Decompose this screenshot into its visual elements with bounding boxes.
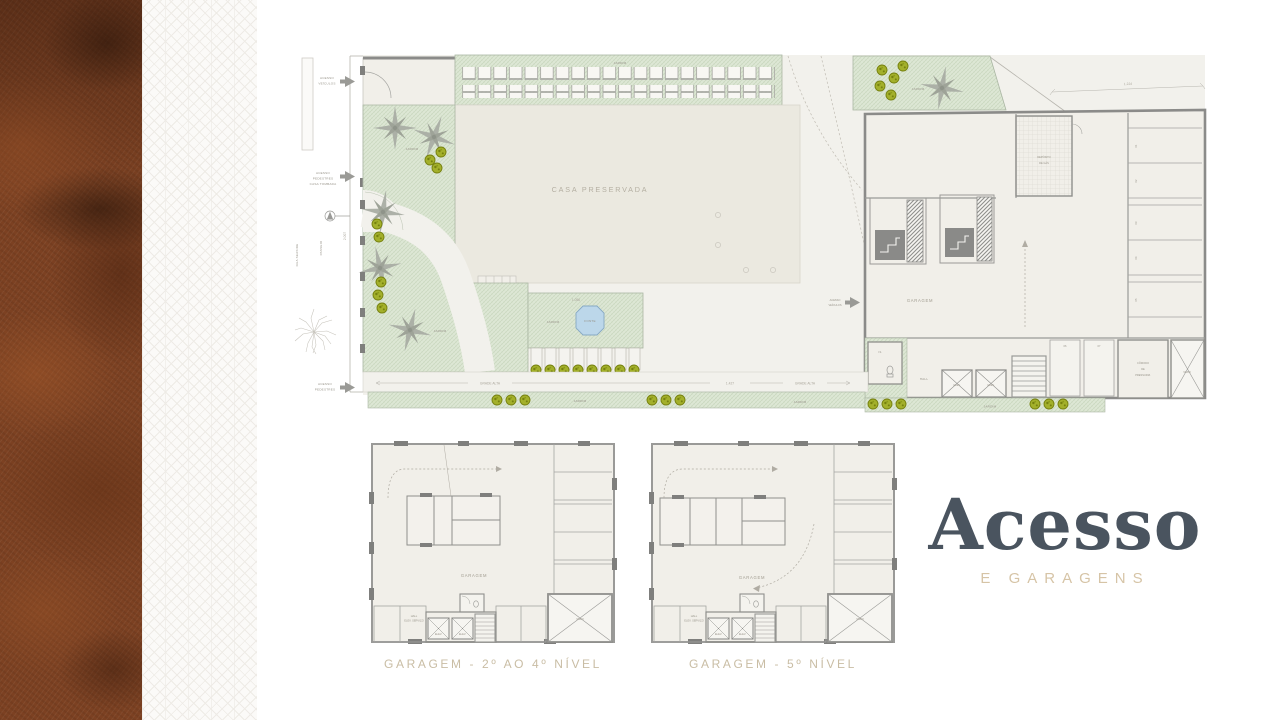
- deposito-gas-room: DEPÓSITO DE GÁS: [1016, 116, 1082, 196]
- svg-text:CASA TOMBADA: CASA TOMBADA: [310, 182, 337, 186]
- grade-alta-label: GRADE ALTA: [480, 382, 501, 386]
- caption-plan-5: GARAGEM - 5º NÍVEL: [642, 657, 904, 671]
- svg-text:HALL: HALL: [691, 614, 698, 618]
- dim-bottom: 1.427: [726, 382, 734, 386]
- floorplan-garagem-5: VAZIO HALL ELEV. SERVIÇO ELEV. ELEV.: [642, 436, 904, 654]
- acesso-pedestres: ACESSO PEDESTRES: [315, 382, 355, 393]
- casa-preservada: CASA PRESERVADA: [455, 105, 800, 288]
- grade-alta-label: GRADE ALTA: [795, 382, 816, 386]
- jardim-label: JARDIM: [406, 147, 419, 151]
- svg-text:VEÍCULOS: VEÍCULOS: [318, 82, 335, 86]
- floorplan-garagem-2-4: VAZIO HALL ELEV. SERVIÇO ELEV. ELEV.: [362, 436, 624, 654]
- jardim-label: JARDIM: [614, 61, 627, 65]
- north-symbol: [325, 211, 350, 221]
- svg-text:ACESSO: ACESSO: [316, 171, 330, 175]
- svg-text:PEDESTRES: PEDESTRES: [313, 177, 334, 181]
- svg-text:ACESSO: ACESSO: [318, 382, 332, 386]
- jardim-label: JARDIM: [574, 399, 587, 403]
- svg-text:ELEV.: ELEV.: [435, 632, 442, 636]
- elev-label: ELEV.: [987, 383, 994, 387]
- svg-text:ELEV. SERVIÇO: ELEV. SERVIÇO: [404, 619, 423, 623]
- svg-text:ACESSO: ACESSO: [320, 76, 334, 80]
- storage-block: [660, 498, 785, 545]
- void-shaft: VAZIO: [828, 594, 892, 642]
- garagem-label: GARAGEM: [461, 573, 487, 578]
- woven-pattern-strip: [142, 0, 257, 720]
- void-shaft: VAZIO: [548, 594, 612, 642]
- svg-text:HALL: HALL: [411, 614, 418, 618]
- stairs: [1012, 356, 1046, 397]
- svg-text:ELEV.: ELEV.: [715, 632, 722, 636]
- jardim-label: JARDIM: [912, 87, 925, 91]
- svg-text:ELEV. SERVIÇO: ELEV. SERVIÇO: [684, 619, 703, 623]
- svg-text:PRESSURIZ.: PRESSURIZ.: [1135, 373, 1151, 377]
- pergola-strip: JARDIM: [455, 55, 782, 105]
- sidewalk-label: PASSEIO: [319, 240, 323, 255]
- svg-text:ELEV.: ELEV.: [459, 632, 466, 636]
- stairs: [475, 614, 495, 642]
- pressurization-room: CÔMODO DE PRESSURIZ.: [1118, 340, 1168, 398]
- svg-text:VAZIO: VAZIO: [576, 617, 584, 621]
- svg-text:ACESSO: ACESSO: [830, 298, 841, 302]
- storage-block: [407, 496, 500, 545]
- dim-left: 2.007: [343, 232, 347, 240]
- page-subtitle: E GARAGENS: [915, 570, 1215, 587]
- garagem-label: GARAGEM: [739, 575, 765, 580]
- jardim-label: JARDIM: [547, 320, 560, 324]
- top-right-garden: JARDIM: [853, 56, 1006, 114]
- void-shaft: VAZIO: [1171, 340, 1204, 398]
- street-name: RUA SEASIDE: [295, 244, 299, 267]
- acesso-veiculos-left: ACESSO VEÍCULOS: [318, 76, 355, 87]
- acesso-pedestres-casa: ACESSO PEDESTRES CASA TOMBADA: [310, 171, 355, 186]
- svg-text:DE: DE: [1141, 367, 1145, 371]
- hall-label: HALL: [920, 377, 929, 381]
- slide: JARDIM JARDIM CASA PRESERVADA: [0, 0, 1281, 720]
- wc-room: I.S.: [865, 338, 907, 398]
- caption-plan-2-4: GARAGEM - 2º AO 4º NÍVEL: [362, 657, 624, 671]
- elev-label: ELEV.: [953, 383, 960, 387]
- svg-text:ELEV.: ELEV.: [739, 632, 746, 636]
- vazio-label: VAZIO: [1183, 370, 1191, 374]
- dim-fountain: 1.056: [572, 298, 580, 302]
- fonte-label: FONTE: [584, 319, 595, 323]
- page-title: Acesso: [915, 490, 1215, 560]
- is-label: I.S.: [878, 350, 882, 354]
- svg-text:PEDESTRES: PEDESTRES: [315, 388, 336, 392]
- casa-preservada-label: CASA PRESERVADA: [552, 185, 649, 194]
- svg-text:DE GÁS: DE GÁS: [1039, 161, 1049, 165]
- stairs: [755, 614, 775, 642]
- svg-text:1.224: 1.224: [1124, 82, 1133, 86]
- svg-text:VEÍCULOS: VEÍCULOS: [828, 303, 841, 307]
- title-block: Acesso E GARAGENS: [915, 490, 1215, 587]
- garage-building: DEPÓSITO DE GÁS GARAGEM: [865, 110, 1205, 398]
- garagem-label: GARAGEM: [907, 298, 933, 303]
- jardim-label: JARDIM: [984, 405, 997, 409]
- svg-text:VAZIO: VAZIO: [856, 617, 864, 621]
- jardim-label: JARDIM: [434, 329, 447, 333]
- rust-texture-strip: [0, 0, 142, 720]
- jardim-label: JARDIM: [794, 400, 807, 404]
- site-plan: JARDIM JARDIM CASA PRESERVADA: [290, 40, 1215, 418]
- bottom-sidewalk: GRADE ALTA 1.427 GRADE ALTA: [363, 372, 868, 392]
- sketch-tree: [295, 309, 336, 354]
